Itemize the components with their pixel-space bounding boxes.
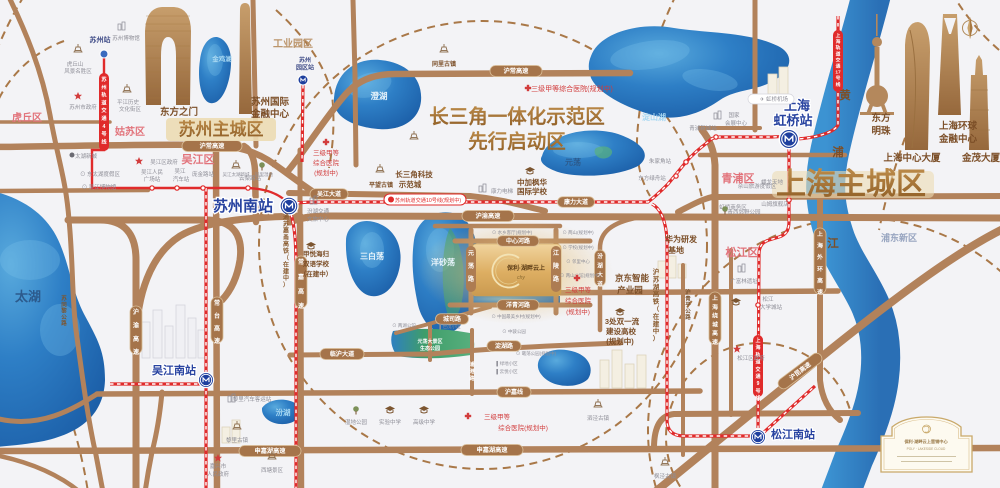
svg-text:高级中学: 高级中学 [413, 418, 436, 426]
svg-text:苏州轨道交通4号线: 苏州轨道交通4号线 [100, 75, 107, 145]
svg-text:文化街区: 文化街区 [119, 105, 142, 113]
svg-text:东方之门: 东方之门 [160, 106, 198, 118]
svg-text:▌世茂小区: ▌世茂小区 [439, 323, 461, 330]
svg-text:吴江: 吴江 [174, 168, 186, 175]
svg-text:三级甲等: 三级甲等 [484, 412, 511, 421]
svg-text:西塘景区: 西塘景区 [261, 466, 284, 474]
svg-text:临沪大道: 临沪大道 [330, 350, 356, 358]
svg-text:苏州国际: 苏州国际 [251, 96, 290, 108]
svg-text:三白荡: 三白荡 [360, 251, 384, 261]
svg-text:城司路: 城司路 [443, 315, 462, 323]
svg-text:三级甲等综合医院(规划中): 三级甲等综合医院(规划中) [531, 84, 613, 93]
svg-text:京东智能: 京东智能 [615, 273, 650, 283]
svg-text:金茂大厦: 金茂大厦 [961, 152, 1000, 164]
svg-text:浦东新区: 浦东新区 [881, 232, 917, 243]
svg-text:黎里古镇: 黎里古镇 [226, 436, 249, 444]
svg-text:泗泾古镇: 泗泾古镇 [587, 414, 610, 422]
svg-text:苏州博物馆: 苏州博物馆 [112, 34, 140, 42]
svg-text:沪青平公路: 沪青平公路 [685, 288, 691, 321]
svg-text:康力大道: 康力大道 [563, 198, 588, 206]
svg-text:苏州: 苏州 [299, 56, 311, 64]
svg-text:POLY · LAKESIDE CLOUD: POLY · LAKESIDE CLOUD [907, 447, 946, 451]
svg-text:⊙ 中骏公园: ⊙ 中骏公园 [502, 328, 526, 335]
svg-text:(规划中): (规划中) [606, 336, 634, 346]
svg-text:工业园区: 工业园区 [273, 37, 313, 50]
svg-text:吴江大道: 吴江大道 [317, 190, 341, 198]
svg-text:产业园: 产业园 [617, 285, 643, 295]
svg-text:吴江人民: 吴江人民 [141, 169, 164, 176]
svg-text:松江区: 松江区 [726, 245, 759, 259]
svg-text:⊙ 东太湖度假区: ⊙ 东太湖度假区 [80, 170, 121, 178]
svg-text:中心河路: 中心河路 [506, 237, 531, 245]
svg-text:⊙ 中国最美乡村(规划中): ⊙ 中国最美乡村(规划中) [491, 313, 541, 320]
svg-text:▌云悦小区: ▌云悦小区 [496, 368, 518, 375]
svg-text:洋青河路: 洋青河路 [506, 301, 531, 309]
svg-text:综合医院(规划中): 综合医院(规划中) [498, 423, 548, 432]
svg-text:园区站: 园区站 [296, 64, 314, 72]
svg-text:金融中心: 金融中心 [938, 133, 978, 145]
svg-text:庞金路站: 庞金路站 [192, 170, 215, 178]
svg-text:广场站: 广场站 [144, 175, 161, 183]
svg-text:广富林遗址: 广富林遗址 [730, 277, 758, 285]
svg-text:⊙ 吴江博物馆: ⊙ 吴江博物馆 [82, 183, 117, 191]
svg-text:⊙ 鼋荡公园(规划中): ⊙ 鼋荡公园(规划中) [516, 350, 557, 357]
svg-text:▌绿地小区: ▌绿地小区 [496, 360, 518, 367]
svg-text:上海中心大厦: 上海中心大厦 [883, 152, 941, 164]
svg-text:平望古镇: 平望古镇 [369, 181, 393, 189]
svg-text:保利·湖畔云上营销中心: 保利·湖畔云上营销中心 [903, 438, 948, 445]
svg-text:金鸡湖: 金鸡湖 [211, 54, 232, 63]
svg-text:生态公园: 生态公园 [420, 345, 440, 352]
svg-text:✈ 虹桥机场: ✈ 虹桥机场 [760, 95, 789, 103]
svg-text:长三角一体化示范区: 长三角一体化示范区 [429, 105, 605, 128]
svg-text:先行启动区: 先行启动区 [468, 130, 566, 153]
svg-text:会展中心: 会展中心 [725, 119, 748, 127]
svg-text:虎丘区: 虎丘区 [12, 111, 42, 124]
svg-text:三级甲等: 三级甲等 [313, 148, 340, 157]
svg-text:姑苏区: 姑苏区 [114, 125, 145, 138]
svg-text:基地: 基地 [667, 245, 684, 255]
svg-text:江: 江 [827, 236, 839, 250]
svg-text:上海轨道交通9号线: 上海轨道交通9号线 [755, 337, 760, 402]
svg-text:chy: chy [517, 275, 525, 281]
svg-text:保利·湖畔云上: 保利·湖畔云上 [506, 264, 545, 272]
svg-text:示范城: 示范城 [398, 179, 422, 189]
svg-text:青浦新城站: 青浦新城站 [689, 124, 717, 132]
svg-text:苏同黎公路: 苏同黎公路 [61, 294, 67, 327]
svg-text:山姆旗舰店: 山姆旗舰店 [761, 200, 789, 208]
svg-text:沪嘉线: 沪嘉线 [505, 388, 523, 396]
svg-text:人民政府: 人民政府 [207, 470, 230, 478]
svg-text:明珠: 明珠 [871, 125, 891, 137]
svg-text:3处双一流: 3处双一流 [605, 316, 640, 326]
svg-text:吴江区: 吴江区 [182, 152, 215, 166]
svg-text:沪常高速: 沪常高速 [504, 67, 530, 75]
svg-text:⊙ 水乡客厅(规划中): ⊙ 水乡客厅(规划中) [492, 229, 533, 236]
svg-text:元荡路: 元荡路 [468, 250, 475, 283]
svg-text:上海环球: 上海环球 [939, 120, 978, 132]
svg-text:同里古镇: 同里古镇 [432, 60, 456, 68]
svg-text:苏州南站: 苏州南站 [213, 197, 273, 215]
svg-text:长三角科技: 长三角科技 [395, 169, 433, 179]
svg-text:浦港路: 浦港路 [469, 360, 475, 382]
svg-text:淀湖路: 淀湖路 [495, 342, 514, 350]
svg-text:⊙ 两山公馆(规划中): ⊙ 两山公馆(规划中) [560, 272, 601, 279]
svg-text:⊙ 两湖公馆: ⊙ 两湖公馆 [392, 322, 416, 329]
svg-text:康力电梯: 康力电梯 [491, 187, 514, 195]
svg-text:太湖新城: 太湖新城 [75, 152, 98, 160]
svg-text:东方绿舟站: 东方绿舟站 [638, 174, 666, 182]
svg-text:湿地公园: 湿地公园 [345, 418, 368, 426]
svg-text:青浦区: 青浦区 [722, 171, 755, 185]
svg-text:华为研发: 华为研发 [665, 234, 698, 244]
svg-text:黄: 黄 [839, 88, 851, 102]
svg-text:吴江南站: 吴江南站 [152, 363, 196, 377]
svg-text:⊙ 邻里中心: ⊙ 邻里中心 [566, 258, 590, 265]
svg-text:蟠龙天地: 蟠龙天地 [761, 178, 784, 186]
svg-text:吴江区政府: 吴江区政府 [150, 158, 178, 166]
svg-text:沪渝高速: 沪渝高速 [476, 212, 502, 220]
svg-text:（在建中）: （在建中） [300, 269, 333, 278]
svg-text:澄湖: 澄湖 [370, 91, 388, 101]
svg-text:(规划中): (规划中) [566, 307, 590, 316]
svg-text:甲悦海归: 甲悦海归 [303, 249, 330, 258]
svg-text:申嘉湖高速: 申嘉湖高速 [477, 446, 509, 454]
svg-text:苏州站: 苏州站 [90, 35, 111, 44]
svg-text:元荡: 元荡 [565, 157, 581, 167]
svg-text:苏州轨道交通10号线(规划中): 苏州轨道交通10号线(规划中) [395, 196, 462, 204]
svg-text:综合医院: 综合医院 [313, 158, 340, 167]
svg-text:元荡大景区: 元荡大景区 [417, 338, 442, 345]
svg-text:虹桥站: 虹桥站 [773, 113, 812, 128]
svg-text:中加枫华: 中加枫华 [517, 177, 547, 187]
svg-text:汽车站: 汽车站 [173, 175, 190, 183]
svg-text:黎里汽车客运站: 黎里汽车客运站 [233, 395, 272, 403]
svg-text:平江历史: 平江历史 [117, 98, 140, 106]
svg-text:通苏嘉甬高铁（在建中）: 通苏嘉甬高铁（在建中） [282, 213, 290, 289]
svg-text:文旅中心: 文旅中心 [307, 215, 330, 223]
svg-text:云梨路站: 云梨路站 [239, 174, 262, 182]
svg-text:上海轨道交通17号线: 上海轨道交通17号线 [835, 32, 841, 88]
svg-text:太湖: 太湖 [14, 289, 41, 304]
svg-text:风景名胜区: 风景名胜区 [64, 67, 92, 75]
svg-text:国家: 国家 [728, 111, 740, 119]
svg-text:苏州市政府: 苏州市政府 [69, 103, 97, 111]
svg-text:汾湖交通: 汾湖交通 [307, 207, 330, 215]
svg-text:东方: 东方 [871, 112, 891, 124]
svg-text:⊙ 学校(规划中): ⊙ 学校(规划中) [562, 244, 594, 251]
svg-text:青西郊野公园: 青西郊野公园 [727, 208, 761, 216]
svg-text:双语学校: 双语学校 [303, 259, 330, 268]
svg-text:松江: 松江 [762, 295, 774, 303]
svg-text:建设高校: 建设高校 [605, 326, 636, 336]
svg-text:综合医院: 综合医院 [565, 296, 592, 305]
svg-text:实验中学: 实验中学 [379, 418, 402, 426]
svg-text:国际学校: 国际学校 [517, 186, 547, 196]
svg-text:汾湖: 汾湖 [276, 407, 291, 417]
svg-text:淀山湖: 淀山湖 [642, 112, 666, 122]
svg-text:朱家角站: 朱家角站 [649, 157, 672, 165]
svg-text:虎丘山: 虎丘山 [67, 60, 84, 68]
svg-text:三级甲等: 三级甲等 [565, 285, 592, 294]
svg-text:苏州主城区: 苏州主城区 [179, 119, 264, 139]
svg-text:洋砂荡: 洋砂荡 [431, 257, 455, 267]
svg-text:⊙ 两山(规划中): ⊙ 两山(规划中) [562, 229, 594, 236]
svg-text:上海主城区: 上海主城区 [776, 168, 926, 201]
svg-text:沪苏湖高铁（在建中）: 沪苏湖高铁（在建中） [652, 267, 660, 343]
svg-text:金融中心: 金融中心 [250, 108, 290, 120]
svg-text:浦: 浦 [832, 145, 844, 159]
svg-text:松江区政府: 松江区政府 [737, 354, 765, 362]
svg-text:松江南站: 松江南站 [771, 427, 815, 441]
svg-text:(规划中): (规划中) [314, 168, 338, 177]
svg-text:沪常高速: 沪常高速 [200, 142, 226, 150]
svg-text:嘉兴市: 嘉兴市 [210, 462, 227, 470]
svg-text:大学城站: 大学城站 [760, 303, 783, 311]
svg-text:枫泾古镇: 枫泾古镇 [654, 472, 677, 480]
